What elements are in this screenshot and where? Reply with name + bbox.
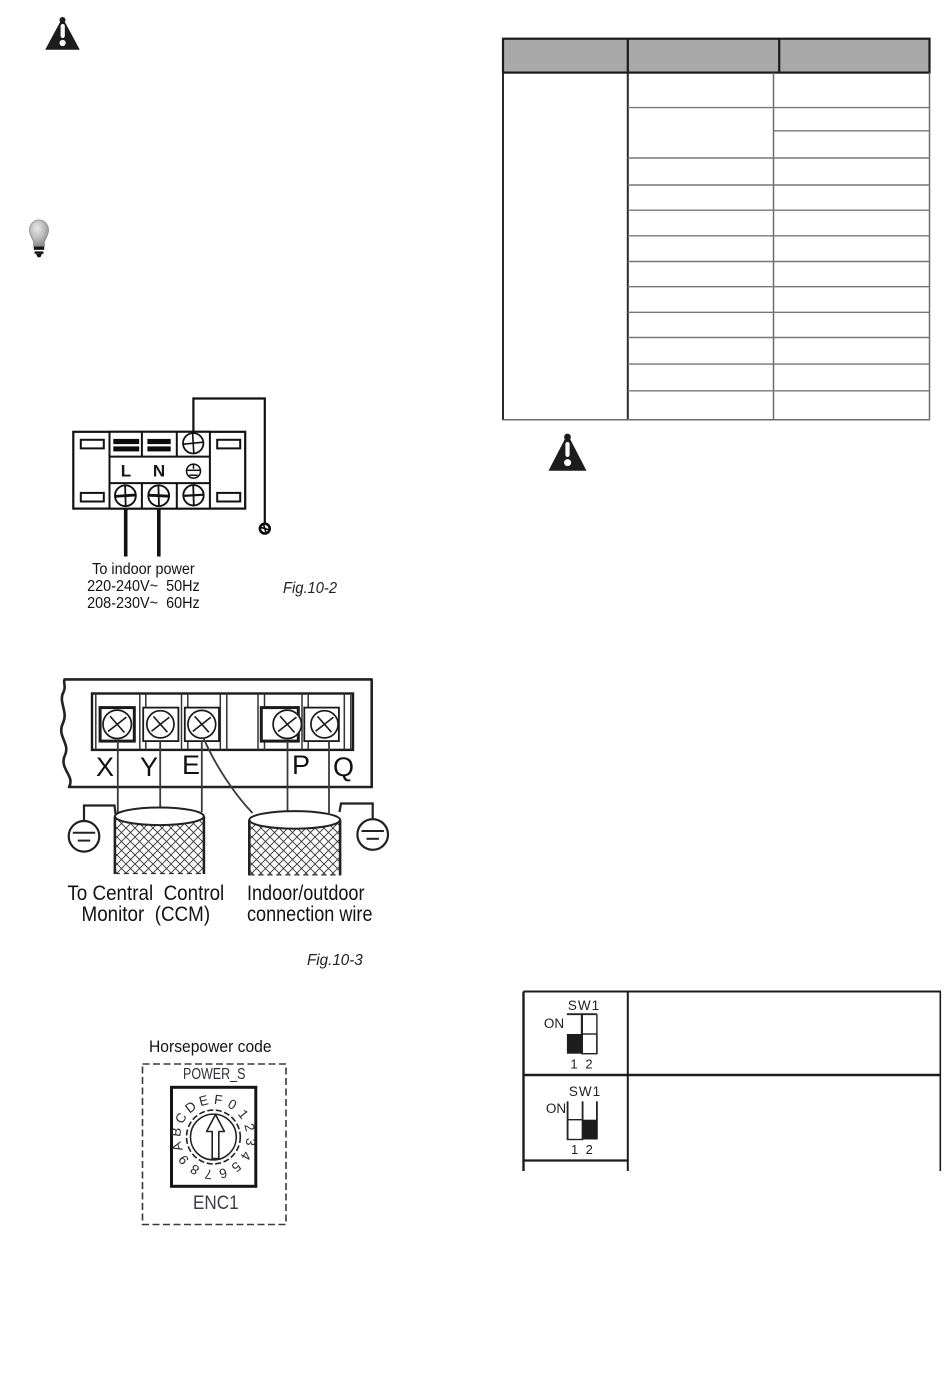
svg-text:1: 1 [570, 1057, 577, 1072]
svg-text:P: P [292, 750, 310, 780]
svg-text:Q: Q [333, 752, 354, 782]
svg-text:L: L [121, 462, 131, 481]
svg-text:2: 2 [585, 1057, 592, 1072]
svg-text:N: N [153, 462, 165, 481]
svg-text:2: 2 [586, 1142, 593, 1157]
svg-text:1: 1 [571, 1142, 578, 1157]
svg-text:Y: Y [140, 752, 158, 782]
svg-text:SW1: SW1 [569, 1084, 601, 1099]
svg-text:B: B [168, 1127, 184, 1138]
svg-text:E: E [182, 750, 200, 780]
svg-text:ON: ON [546, 1101, 566, 1116]
svg-text:X: X [96, 752, 114, 782]
svg-text:ON: ON [544, 1016, 564, 1031]
svg-text:SW1: SW1 [568, 998, 600, 1013]
